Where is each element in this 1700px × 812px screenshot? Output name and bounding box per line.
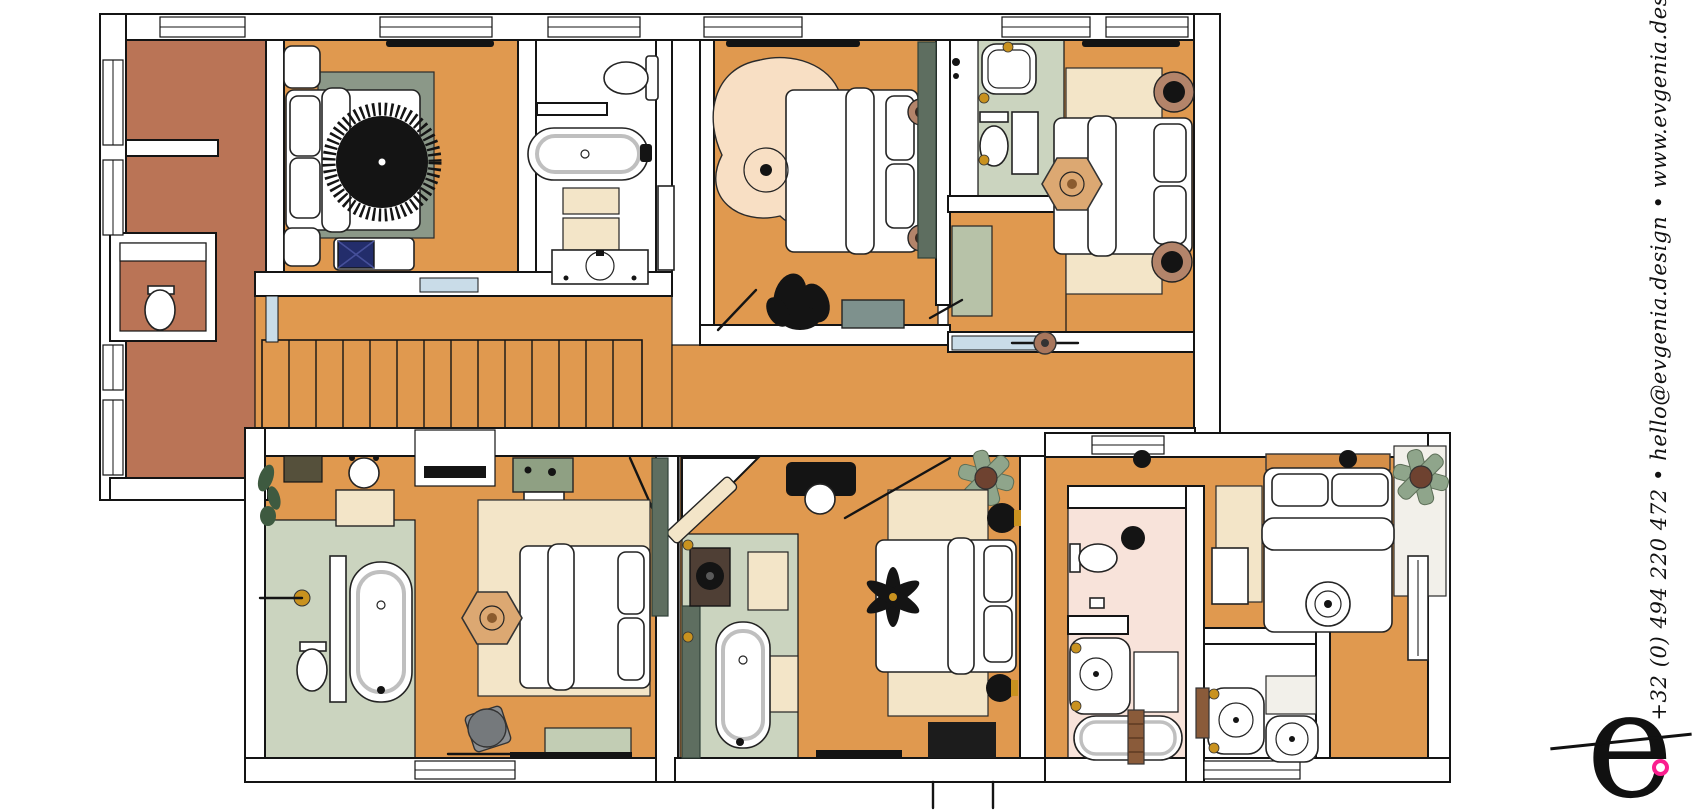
sink <box>982 42 1036 94</box>
toilet <box>145 286 175 330</box>
floor-mat <box>816 750 902 757</box>
bathtub <box>716 622 770 748</box>
contact-info: +32 (0) 494 220 472 • hello@evgenia.desi… <box>1647 0 1671 721</box>
mat <box>1266 676 1316 714</box>
bathtub <box>350 562 412 702</box>
curtain-rod <box>386 40 494 47</box>
partition <box>1012 112 1038 174</box>
logo-accent-dot <box>1652 759 1669 776</box>
faucet <box>640 144 652 162</box>
bathtub <box>528 128 652 180</box>
curtain-rod <box>1082 40 1180 47</box>
cabinet <box>1212 548 1248 604</box>
bath-mat <box>563 218 619 250</box>
wardrobe <box>918 42 936 258</box>
brand-logo: e <box>1580 660 1700 800</box>
wardrobe <box>652 458 668 616</box>
bed <box>1262 468 1394 632</box>
ceiling-light <box>1121 526 1145 550</box>
ceiling-light <box>1133 450 1151 468</box>
nightstand <box>284 228 320 266</box>
sink-vanity <box>552 250 648 284</box>
desk-alcove <box>415 430 495 486</box>
tv-console <box>928 722 996 758</box>
towel-ladder <box>1128 710 1144 764</box>
bath-mat <box>563 188 619 214</box>
towel-ladder <box>1196 688 1209 738</box>
vanity-wall <box>682 606 700 758</box>
floor-plan <box>0 0 1700 812</box>
basin <box>1266 716 1318 762</box>
wc <box>145 286 175 330</box>
bench-with-blue-ottoman <box>334 238 414 270</box>
bathtub <box>1074 710 1182 764</box>
cabinet <box>842 300 904 328</box>
nightstand <box>986 674 1014 702</box>
curtain-rod <box>726 40 860 47</box>
toilet <box>297 642 327 691</box>
tp-holder <box>1090 598 1104 608</box>
wardrobe <box>1408 556 1428 660</box>
bed <box>520 544 650 690</box>
shower-screen <box>330 556 346 702</box>
bathroom-top-middle <box>528 56 658 284</box>
nightstand <box>987 503 1017 533</box>
floor-plan-canvas: +32 (0) 494 220 472 • hello@evgenia.desi… <box>0 0 1700 812</box>
staircase <box>262 340 642 428</box>
toilet <box>1070 544 1117 572</box>
logo-letter: e <box>1586 700 1674 792</box>
toilet <box>604 56 658 100</box>
sink <box>1208 688 1264 754</box>
door-leaf <box>658 186 674 270</box>
ceiling-light <box>1339 450 1357 468</box>
nightstand <box>284 46 320 88</box>
